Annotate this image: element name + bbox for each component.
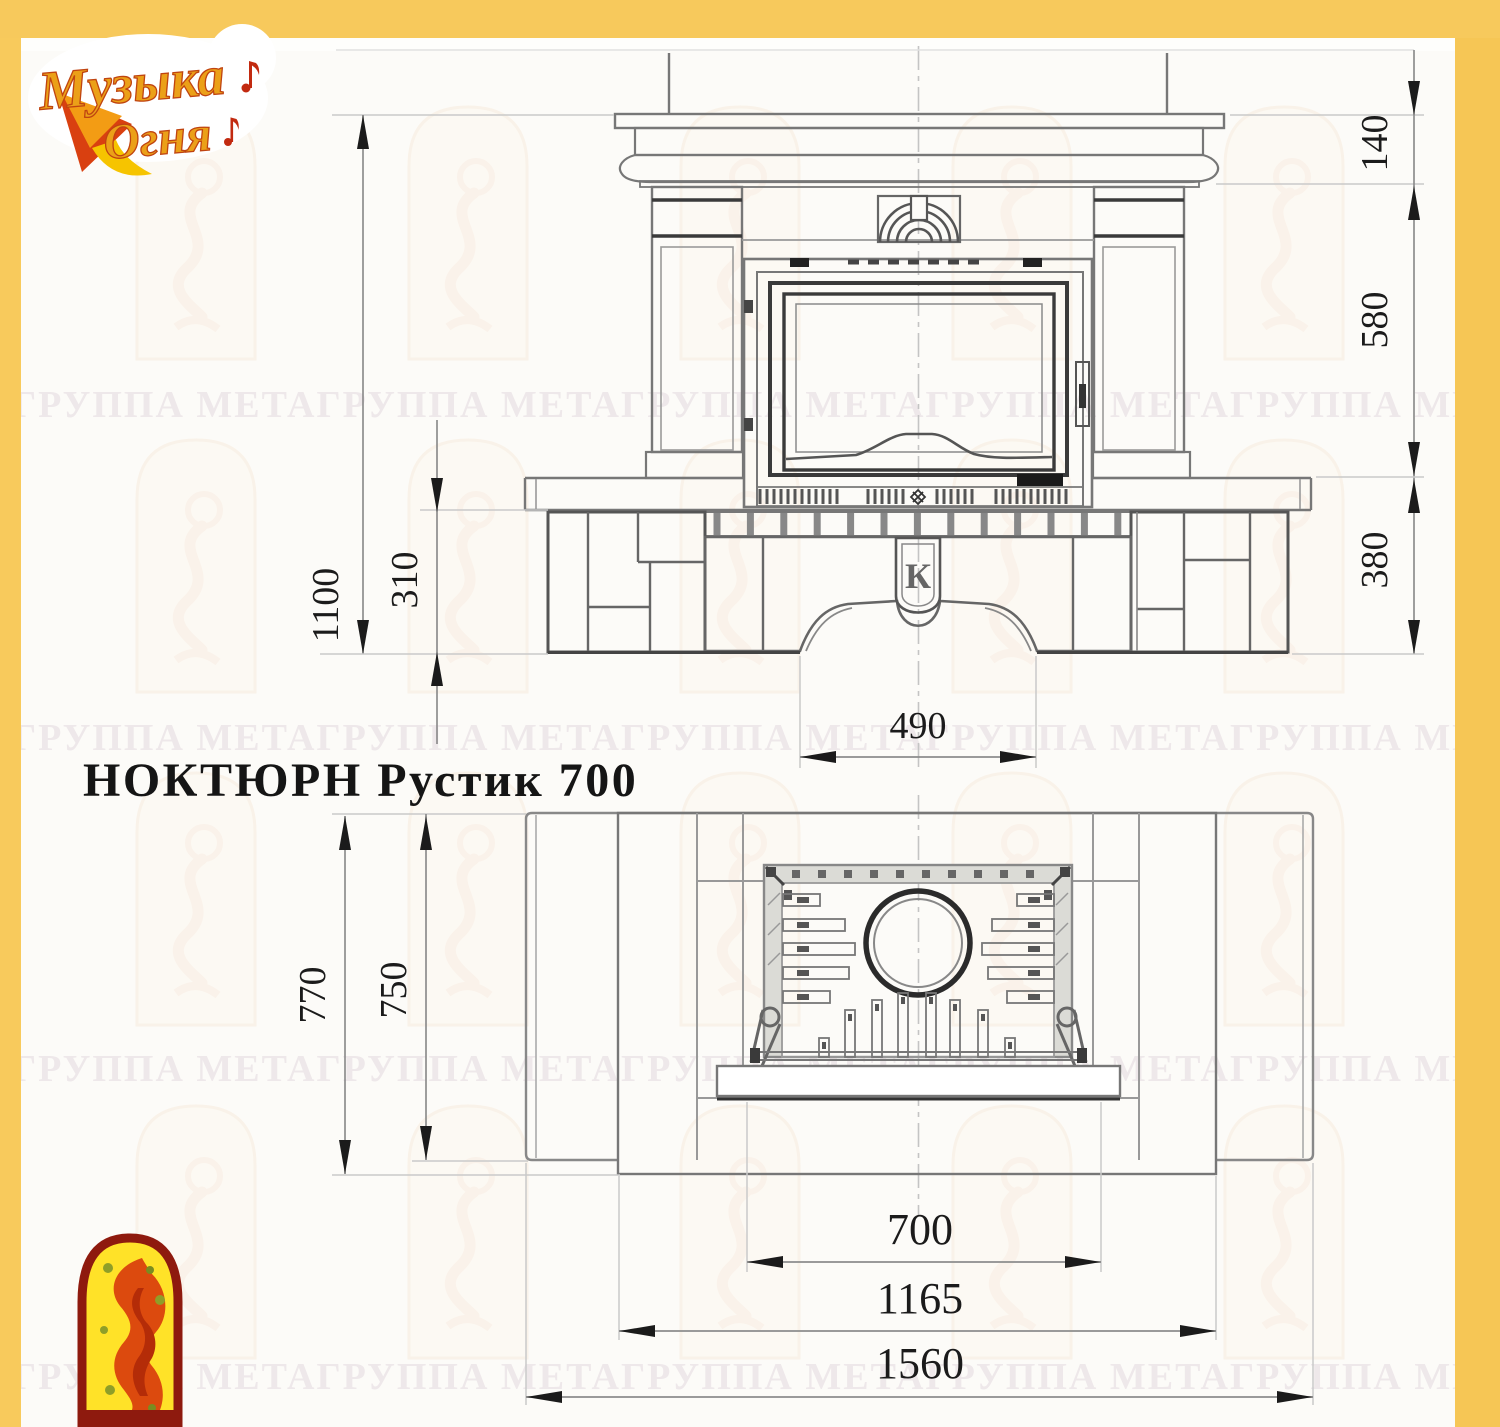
svg-text:ГРУППА МЕТАГРУППА МЕТАГРУППА М: ГРУППА МЕТАГРУППА МЕТАГРУППА МЕТАГРУППА … [12, 717, 1500, 759]
svg-text:1560: 1560 [876, 1339, 964, 1388]
svg-text:700: 700 [887, 1205, 953, 1254]
svg-text:ГРУППА МЕТАГРУППА МЕТАГРУППА М: ГРУППА МЕТАГРУППА МЕТАГРУППА МЕТАГРУППА … [12, 1356, 1500, 1398]
svg-text:НОКТЮРН Рустик 700: НОКТЮРН Рустик 700 [83, 754, 638, 807]
svg-text:770: 770 [292, 967, 334, 1024]
svg-text:310: 310 [384, 552, 426, 609]
svg-text:К: К [905, 556, 931, 596]
svg-text:1165: 1165 [877, 1274, 963, 1323]
svg-text:1100: 1100 [305, 568, 347, 643]
svg-text:490: 490 [890, 705, 947, 747]
svg-text:580: 580 [1354, 292, 1396, 349]
svg-text:380: 380 [1354, 532, 1396, 589]
svg-text:750: 750 [373, 962, 415, 1019]
svg-text:140: 140 [1354, 115, 1396, 172]
svg-text:Огня: Огня [101, 105, 214, 170]
